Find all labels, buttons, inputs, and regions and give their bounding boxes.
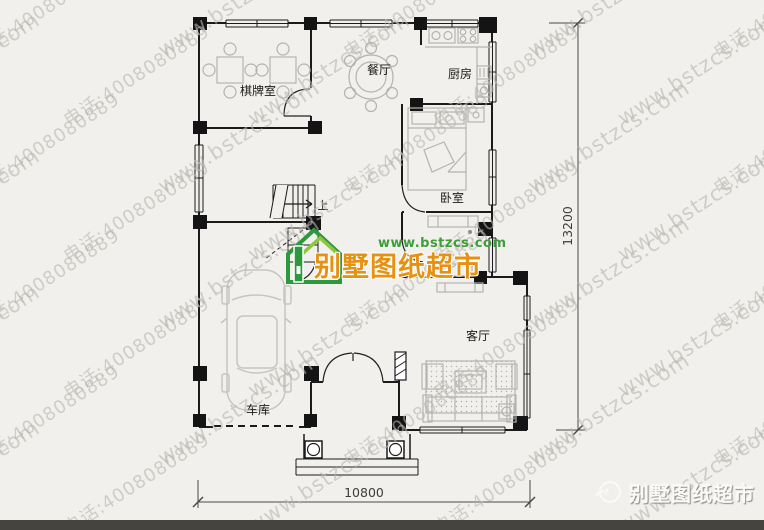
- hatched-pier: [395, 352, 406, 380]
- footer-brand-name: 别墅图纸超市: [629, 478, 755, 507]
- room-label-bedroom: 卧室: [440, 190, 464, 205]
- center-brand: www.bstzcs.com 别墅图纸超市: [282, 222, 502, 288]
- stairs-up-label: 上: [318, 199, 329, 212]
- room-label-chess: 棋牌室: [240, 83, 276, 98]
- car: [221, 270, 291, 410]
- room-label-kitchen: 厨房: [448, 66, 472, 81]
- room-label-living: 客厅: [466, 328, 490, 343]
- room-label-dining: 餐厅: [367, 62, 391, 77]
- footer-brand-icon: [594, 477, 624, 507]
- center-brand-name: 别墅图纸超市: [314, 245, 482, 284]
- footer-brand: 别墅图纸超市: [594, 477, 755, 507]
- dimension-width: 10800: [344, 485, 384, 500]
- bottom-bar: [0, 520, 764, 530]
- porch: [296, 434, 418, 475]
- dimension-height: 13200: [560, 206, 575, 246]
- room-label-garage: 车库: [246, 402, 270, 417]
- screenshot-stage: 10800 13200 棋牌室 餐厅 厨房 卧室 客厅 车库 上 www.bst…: [0, 0, 764, 530]
